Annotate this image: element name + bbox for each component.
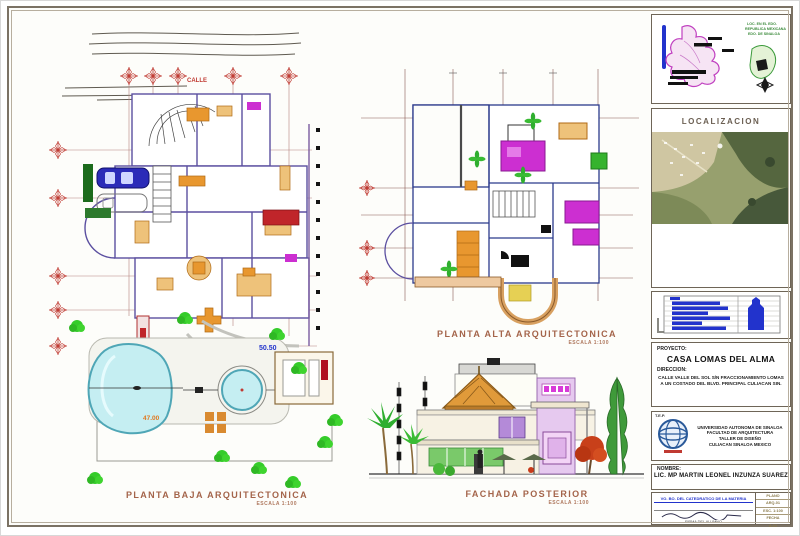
school-label: T.E.P. — [655, 413, 665, 418]
croquis-box — [651, 291, 791, 339]
planta-alta-drawing — [353, 63, 649, 329]
person-silhouette — [478, 450, 483, 469]
planta-alta-scale: ESCALA 1:100 — [529, 340, 609, 346]
stamp-line-5: A-01 — [756, 523, 790, 529]
boundary-posts — [316, 128, 320, 330]
project-label: PROYECTO: — [657, 346, 790, 352]
signature-box: VO. BO. DEL CATEDRATICO DE LA MATERIA FI… — [651, 492, 791, 525]
stamp-line-3: ESC. 1:100 — [756, 508, 790, 515]
project-box: PROYECTO: CASA LOMAS DEL ALMA DIRECCION:… — [651, 342, 791, 407]
project-name: CASA LOMAS DEL ALMA — [652, 354, 790, 364]
signature-caption: FIRMA DEL ALUMNO — [654, 520, 753, 524]
school-box: T.E.P. UNIVERSIDAD AUTONOMA DE SINALOA F… — [651, 411, 791, 461]
stamp-line-4: FECHA — [756, 515, 790, 522]
university-logo-icon — [652, 415, 694, 457]
terrain-contours — [62, 33, 301, 100]
map-caption-3: EDO. DE SINALOA — [748, 32, 780, 36]
map-caption-2: REPUBLICA MEXICANA — [745, 27, 786, 31]
pool-level-label: 47.00 — [143, 415, 160, 422]
name-box: NOMBRE: LIC. MP MARTIN LEONEL INZUNZA SU… — [651, 464, 791, 490]
architectural-sheet-page: { "sheet": { "titles": { "planta_baja": … — [0, 0, 800, 536]
croquis-drawing — [652, 292, 789, 337]
stamp-line-2: ARQ-01 — [756, 500, 790, 507]
north-compass-icon — [757, 77, 773, 93]
terrace-level-label: 50.50 — [259, 345, 277, 352]
fachada-scale: ESCALA 1:100 — [509, 500, 589, 506]
signature-row — [654, 503, 753, 511]
planta-baja-scale: ESCALA 1:100 — [217, 501, 297, 507]
name-value: LIC. MP MARTIN LEONEL INZUNZA SUAREZ — [652, 473, 790, 479]
localizacion-label: LOCALIZACION — [652, 109, 790, 126]
map-scale-bar — [662, 25, 666, 69]
stair-upper — [493, 191, 535, 217]
state-map-drawing: LOC. EN EL EDO. REPUBLICA MEXICANA EDO. … — [652, 15, 789, 102]
stamp-line-1: PLANO — [756, 493, 790, 500]
localizacion-box: LOCALIZACION — [651, 108, 791, 288]
fachada-drawing — [359, 348, 654, 490]
signature-header: VO. BO. DEL CATEDRATICO DE LA MATERIA — [654, 495, 753, 503]
straight-stair — [153, 166, 171, 222]
map-caption-1: LOC. EN EL EDO. — [747, 22, 777, 26]
signature-scribble — [654, 511, 753, 520]
aerial-photo — [652, 132, 789, 224]
planta-alta-title: PLANTA ALTA ARQUITECTONICA — [407, 329, 647, 339]
address-line-2: A UN COSTADO DEL BLVD. PRINCIPAL CULIACA… — [652, 381, 790, 387]
name-label: NOMBRE: — [657, 466, 790, 472]
planta-baja-title: PLANTA BAJA ARQUITECTONICA — [97, 490, 337, 500]
pool-house — [275, 352, 333, 404]
school-line-4: CULIACAN SINALOA MEXICO — [694, 442, 786, 448]
state-map-box: LOC. EN EL EDO. REPUBLICA MEXICANA EDO. … — [651, 14, 791, 104]
planta-baja-drawing: CALLE — [37, 16, 349, 490]
drawing-sheet: CALLE — [7, 6, 793, 527]
curved-balcony — [415, 277, 555, 322]
street-label: CALLE — [187, 78, 207, 84]
address-label: DIRECCION: — [657, 367, 790, 373]
fachada-title: FACHADA POSTERIOR — [407, 489, 647, 499]
